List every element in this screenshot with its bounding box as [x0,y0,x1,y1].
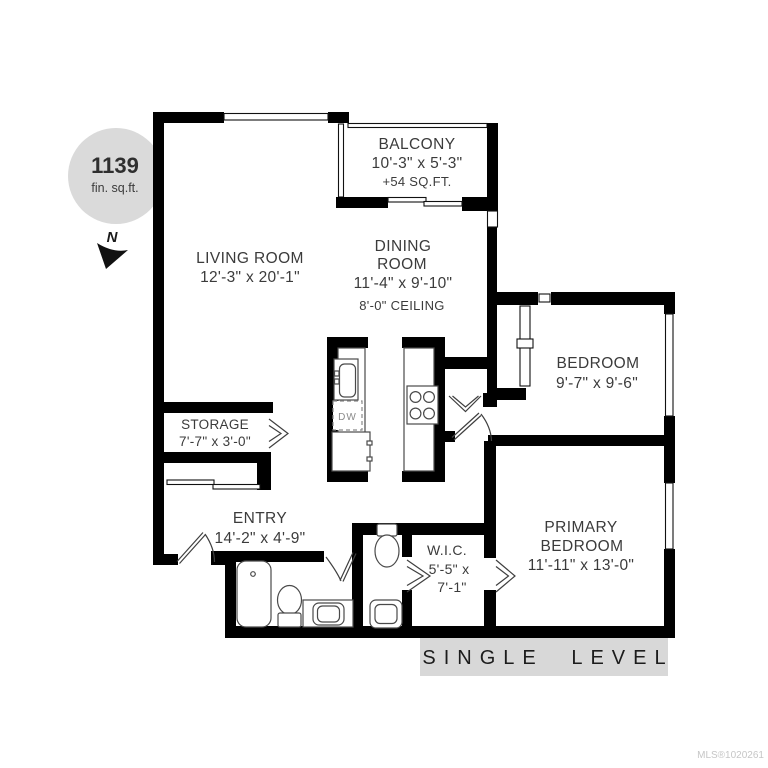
stove [407,386,438,424]
wall [664,292,675,314]
wall [352,523,363,638]
toilet-tank [377,524,397,536]
sliding-door [167,480,214,485]
wall [225,626,675,638]
room-dims-wic: 7'-1" [437,579,466,595]
wall [487,227,497,393]
wall [328,112,349,123]
wall [402,529,412,557]
wall [488,388,526,400]
wall [443,357,488,369]
wall [225,551,324,562]
storage-bifold-door [269,419,288,448]
room-label-living-room: LIVING ROOM [196,250,304,267]
wall [487,292,538,305]
wall [551,292,675,305]
room-dims-living-room: 12'-3" x 20'-1" [200,269,300,286]
wall [225,551,236,638]
refrigerator [332,432,370,471]
area-badge-unit: fin. sq.ft. [91,181,138,195]
wall [153,402,273,413]
stove-burner [424,408,435,419]
floor-plan: 1139 fin. sq.ft. N [0,0,768,768]
wall [462,197,498,211]
vanity-sink-basin [318,606,340,622]
dishwasher-label: DW [338,412,357,423]
room-dims-dining-room: 11'-4" x 9'-10" [354,275,453,292]
wall [153,554,178,565]
window [488,211,498,227]
kitchen-faucet [335,371,340,376]
window [224,114,328,121]
room-extra-balcony: +54 SQ.FT. [382,174,451,189]
stove-burner [424,392,435,403]
window [666,483,674,549]
room-label-primary-bedroom: PRIMARY [544,519,617,536]
hallway-bifold-door [449,396,481,412]
wic-bifold-door [407,560,430,592]
room-label-dining-room: DINING [375,238,432,255]
stove-burner [410,408,421,419]
window [539,294,550,302]
room-label-storage: STORAGE [181,417,249,432]
wall [327,471,368,482]
toilet [278,586,302,615]
room-dims-wic: 5'-5" x [429,561,470,577]
compass-north-label: N [107,229,119,246]
kitchen-faucet [335,379,340,384]
room-ceiling-dining-room: 8'-0" CEILING [359,298,444,313]
room-dims-balcony: 10'-3" x 5'-3" [372,155,463,172]
window [666,314,674,416]
kitchen-sink-basin [340,364,356,397]
room-label-balcony: BALCONY [379,136,456,153]
room-label-wic: W.I.C. [427,542,467,558]
stove-burner [410,392,421,403]
balcony-railing-left [339,124,344,197]
room-label-bedroom: BEDROOM [557,355,640,372]
wall [488,435,675,446]
balcony-railing-top [348,124,487,128]
wall [153,112,164,565]
mls-watermark: MLS®1020261 [697,750,764,761]
room-dims-storage: 7'-7" x 3'-0" [179,434,251,449]
room-label-primary-bedroom: BEDROOM [541,538,624,555]
wall [484,590,496,638]
sliding-door [424,202,462,207]
bathtub-drain [251,572,256,577]
wall [664,549,675,638]
room-dims-bedroom: 9'-7" x 9'-6" [556,375,638,392]
closet-door-handle [517,339,533,348]
room-dims-primary-bedroom: 11'-11" x 13'-0" [528,557,634,574]
wall [352,523,492,535]
bathtub [237,561,271,627]
wall [484,441,496,558]
room-label-dining-room: ROOM [377,256,427,273]
area-badge-number: 1139 [91,153,139,178]
wall [153,452,268,463]
bathroom-door [326,553,356,582]
room-label-entry: ENTRY [233,510,287,527]
refrigerator-handle [367,441,372,445]
room-dims-entry: 14'-2" x 4'-9" [215,530,306,547]
toilet-tank [278,613,301,627]
wall [336,197,388,208]
toilet [375,535,399,567]
wall [664,416,675,483]
refrigerator-handle [367,457,372,461]
level-banner-label: SINGLE LEVEL [422,647,673,669]
sliding-door [388,198,426,203]
compass-arrow-icon [97,243,128,269]
sliding-door [213,485,260,490]
primary-wic-bifold-door [496,560,515,592]
wall [402,471,445,482]
vanity-sink-basin [375,605,397,624]
primary-bedroom-door [452,413,492,441]
entry-door [177,533,215,564]
